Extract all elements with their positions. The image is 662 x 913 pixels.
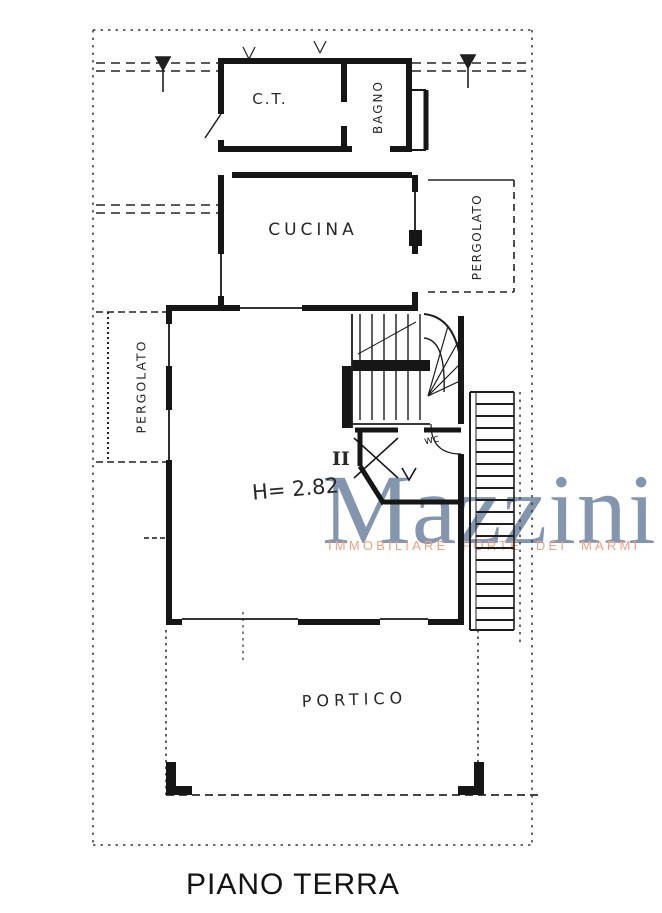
dimension-ticks: [243, 41, 326, 59]
floor-title: PIANO TERRA: [186, 868, 400, 902]
wc-room-walls: [354, 430, 461, 504]
property-boundary: [93, 30, 532, 845]
room-label-pergolato-right: PERGOLATO: [470, 179, 484, 295]
kitchen-walls: [218, 175, 422, 311]
room-label-ct: C.T.: [232, 90, 308, 108]
external-stairs: [470, 392, 514, 630]
room-label-cucina: CUCINA: [240, 220, 386, 240]
pergolato-left-outline: [96, 312, 166, 462]
room-label-pergolato-left: PERGOLATO: [134, 319, 149, 455]
living-room-walls: [144, 308, 464, 625]
room-label-bagno: BAGNO: [371, 69, 385, 145]
internal-stairs: [342, 314, 462, 428]
portico-post-se: [458, 762, 484, 795]
floorplan-page: Mazzini IMMOBILIARE FORTE DEI MARMI: [0, 0, 662, 913]
floor-plan-drawing: [0, 0, 662, 913]
unit-number-label: II: [332, 448, 350, 470]
portico-post-sw: [166, 762, 192, 795]
fence-lines: [96, 63, 530, 213]
